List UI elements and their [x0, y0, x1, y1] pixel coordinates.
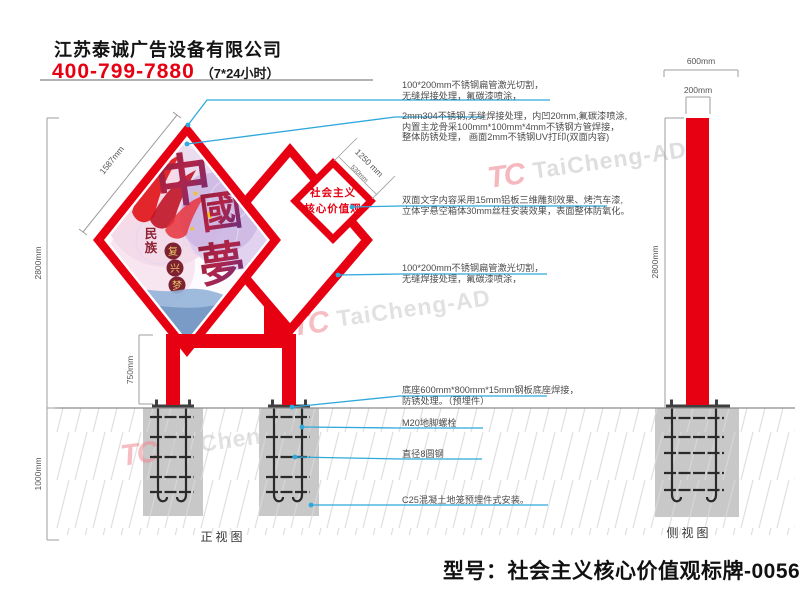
svg-text:复: 复: [168, 245, 178, 258]
dim-side-height: 2800mm: [650, 245, 660, 278]
annotation-line: 防锈处理。（预埋件）: [402, 396, 579, 407]
annotation-anchor-bolt: M20地脚螺栓: [402, 418, 457, 429]
dim-panel-edge: 1587mm: [97, 144, 126, 176]
annotation-line: 双面文字内容采用15mm铝板三维雕刻效果、烤汽车漆,: [402, 195, 630, 206]
annotation-line: 无缝焊接处理，氟碳漆喷涂，: [402, 274, 543, 285]
dim-height-above: 2800mm: [33, 246, 43, 279]
dim-leg: 750mm: [125, 356, 135, 384]
annotation-lettering: 双面文字内容采用15mm铝板三维雕刻效果、烤汽车漆, 立体字悬空箱体30mm丝柱…: [402, 195, 630, 216]
watermark-logo-icon: TC: [485, 157, 529, 195]
annotation-concrete: C25混凝土地笼预埋件式安装。: [402, 495, 529, 506]
left-leg: [166, 348, 180, 405]
side-view-pole: [686, 118, 709, 405]
model-number: 型号：社会主义核心价值观标牌-0056: [443, 555, 800, 585]
dim-base-width: 600mm: [687, 56, 715, 66]
annotation-frame-tube2: 100*200mm不锈钢扁管激光切割， 无缝焊接处理，氟碳漆喷涂，: [402, 263, 543, 284]
svg-text:兴: 兴: [170, 263, 180, 275]
annotation-line: 无缝焊接处理，氟碳漆喷涂，: [402, 91, 543, 102]
annotation-base-plate: 底座600mm*800mm*15mm钢板底座焊接， 防锈处理。（预埋件）: [402, 385, 579, 406]
watermark-top: TC TaiCheng-AD: [485, 134, 689, 195]
front-view-label: 正视图: [200, 529, 245, 544]
svg-text:族: 族: [145, 240, 158, 255]
technical-drawing: TC TaiCheng-AD: [0, 0, 800, 600]
dim-underground: 1000mm: [33, 457, 43, 490]
values-line1: 社会主义: [309, 186, 356, 199]
watermark-text: TaiCheng-AD: [335, 284, 492, 331]
svg-text:民: 民: [145, 226, 158, 241]
annotation-line: 整体防锈处理， 画面2mm不锈钢UV打印(双面内容): [402, 132, 627, 143]
main-diamond-panel: ★ ★ ★ ★ 中 國 夢 民 族: [93, 123, 290, 357]
minzu-vertical-text: 民 族: [145, 226, 158, 255]
annotation-line: 2mm304不锈钢,无缝焊接处理，内凹20mm,氟碳漆喷涂,: [402, 111, 627, 122]
annotation-line: 100*200mm不锈钢扁管激光切割，: [402, 263, 543, 274]
side-view-label: 侧视图: [666, 525, 711, 540]
annotation-line: 底座600mm*800mm*15mm钢板底座焊接，: [402, 385, 579, 396]
star-icon: ★: [189, 225, 195, 233]
annotation-line: 立体字悬空箱体30mm丝柱安装效果，表面整体防氧化。: [402, 206, 630, 217]
annotation-line: 100*200mm不锈钢扁管激光切割，: [402, 80, 543, 91]
cross-bar: [166, 334, 296, 348]
annotation-frame-tube: 100*200mm不锈钢扁管激光切割， 无缝焊接处理，氟碳漆喷涂，: [402, 80, 543, 101]
annotation-panel-steel: 2mm304不锈钢,无缝焊接处理，内凹20mm,氟碳漆喷涂, 内置主龙骨采100…: [402, 111, 627, 143]
dim-pole-width: 200mm: [684, 85, 712, 95]
blueprint-canvas: 江苏泰诚广告设备有限公司 400-799-7880（7*24小时）: [0, 0, 800, 600]
annotation-line: 内置主龙骨采100mm*100mm*4mm不锈钢方管焊接，: [402, 122, 627, 133]
right-leg: [282, 348, 296, 405]
annotation-rebar: 直径8圆钢: [402, 449, 444, 460]
